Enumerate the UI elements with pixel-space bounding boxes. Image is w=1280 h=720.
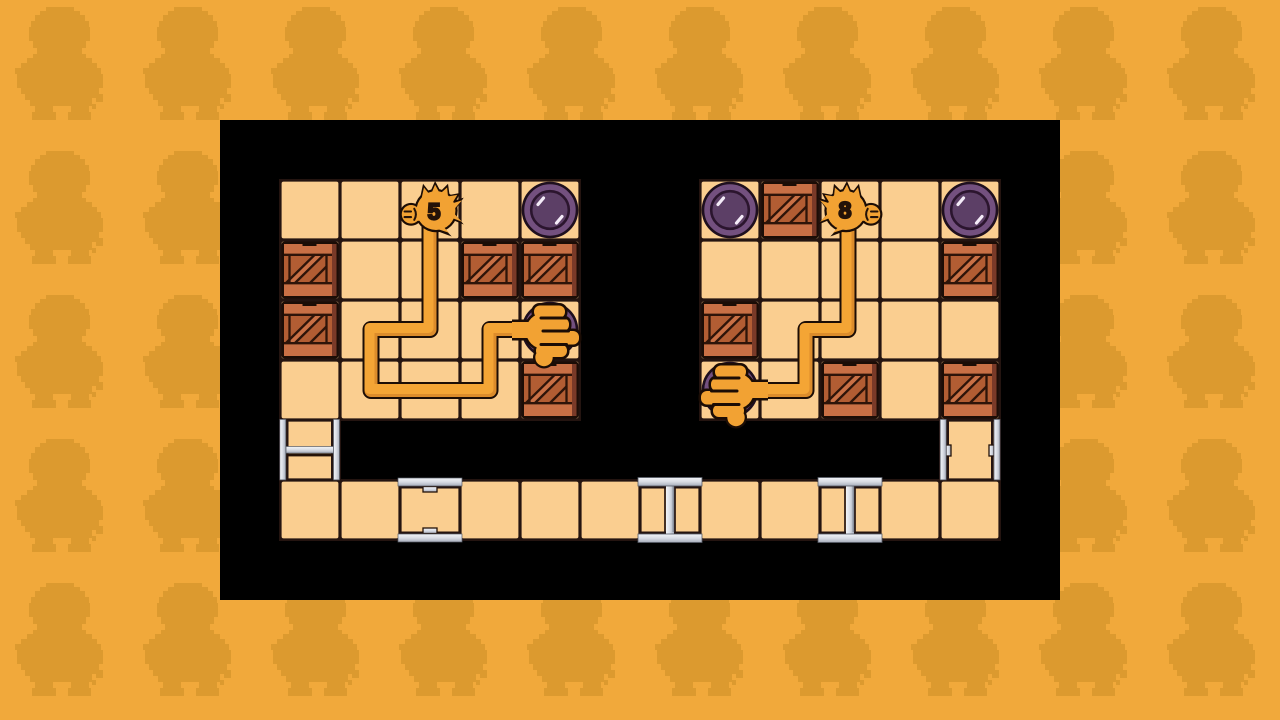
svg-text:5: 5 bbox=[428, 199, 441, 225]
svg-text:8: 8 bbox=[839, 197, 852, 223]
